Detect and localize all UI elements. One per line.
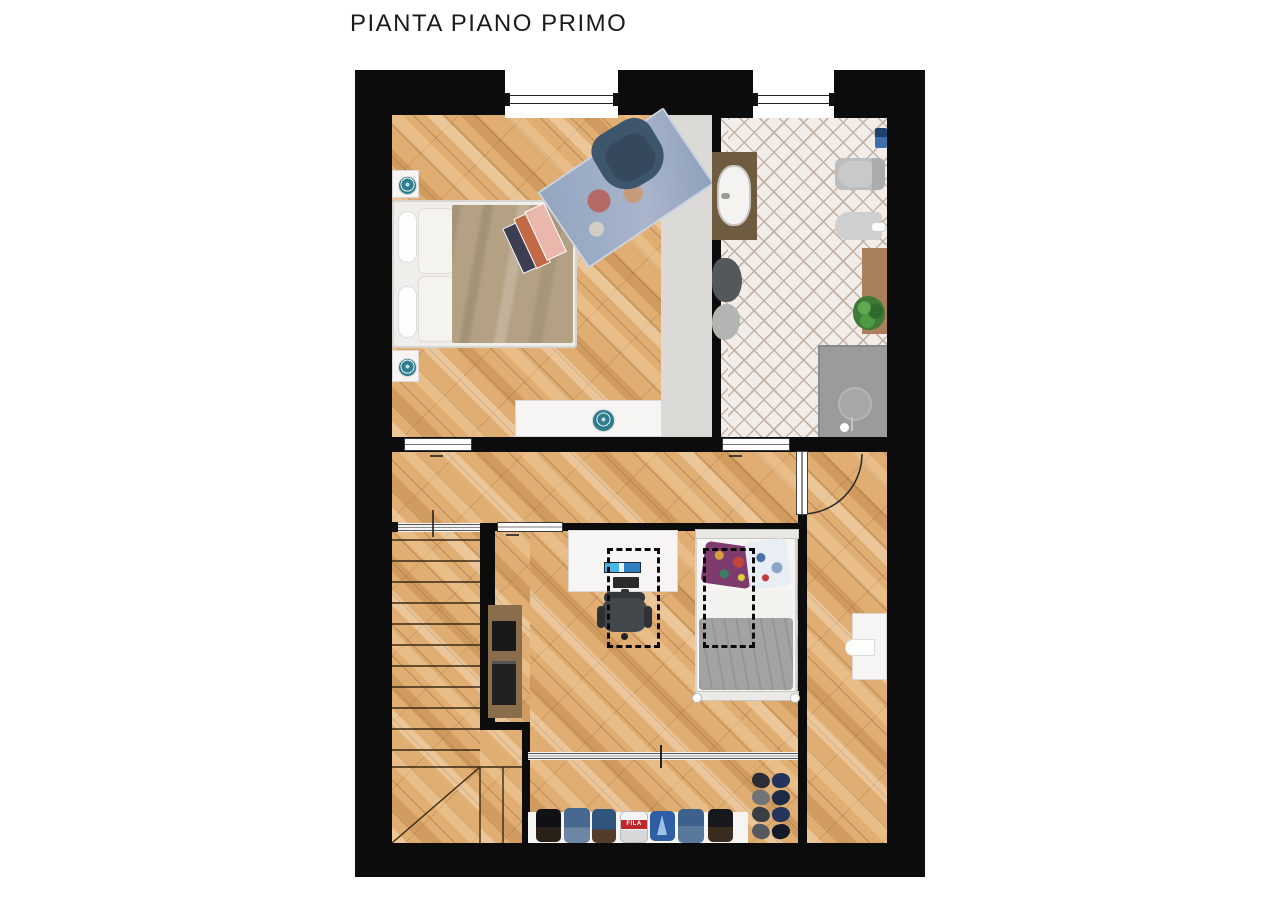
shower-drain-icon — [840, 423, 849, 432]
shoe-box: FILA — [620, 811, 648, 843]
folded-jacket-dark — [536, 809, 561, 842]
shoe-icon — [770, 788, 791, 807]
window-bedroom-1 — [505, 70, 618, 118]
folded-jeans-dark — [592, 809, 616, 843]
decor-plate-icon — [592, 409, 615, 432]
window-jamb-right — [613, 93, 618, 106]
bidet — [835, 212, 882, 240]
window-glazing — [755, 95, 832, 104]
double-bed — [392, 200, 577, 348]
bed-bolster-top — [398, 211, 417, 263]
shoe-icon — [751, 789, 771, 807]
understair-nook-floor — [480, 730, 522, 843]
shower-valve-icon — [851, 417, 853, 431]
toilet-tank — [872, 158, 885, 190]
towel-dark — [712, 258, 742, 302]
hallway-floor — [392, 452, 798, 523]
folded-jeans-light — [564, 808, 590, 843]
shoe-rack — [751, 772, 795, 843]
shoe-icon — [771, 806, 791, 824]
sliding-door-bedroom-1 — [404, 438, 472, 451]
decor-plate-icon — [398, 358, 417, 377]
armchair-cushion — [600, 128, 661, 188]
decor-plate-icon — [398, 176, 417, 195]
low-dresser — [515, 400, 662, 437]
bed-headboard — [695, 529, 799, 539]
floor-plan: FILA — [355, 70, 925, 877]
shower — [818, 345, 887, 437]
window-glazing — [507, 95, 616, 104]
nightstand-bottom — [392, 350, 419, 382]
faucet-icon — [721, 193, 730, 199]
radiator — [852, 613, 887, 680]
speaker-icon — [492, 661, 516, 705]
chair-armrest-left — [597, 606, 605, 628]
shoe-box-label: FILA — [621, 820, 647, 829]
bed-pillow-top — [418, 208, 454, 274]
window-bathroom — [753, 70, 834, 118]
clothes-shelf: FILA — [528, 812, 748, 843]
window-jamb-left — [753, 93, 758, 106]
sliding-door-bathroom — [722, 438, 790, 451]
toilet-bowl — [838, 161, 872, 187]
hinged-door-side-room — [796, 451, 808, 515]
toilet — [835, 158, 885, 190]
floor-plan-page: PIANTA PIANO PRIMO — [0, 0, 1280, 905]
media-cabinet — [488, 605, 522, 718]
bed-pillow-bottom — [418, 276, 454, 342]
eiffel-graphic-icon — [657, 815, 667, 835]
folded-shirt-eiffel — [650, 811, 675, 841]
shoe-icon — [751, 805, 772, 823]
staircase-floor — [392, 523, 480, 843]
bed-post — [790, 693, 800, 703]
skylight-marking-1 — [607, 548, 660, 648]
nightstand-top — [392, 170, 419, 198]
folded-jeans-blue — [678, 809, 704, 843]
bed-bolster-bottom — [398, 286, 417, 338]
page-title: PIANTA PIANO PRIMO — [350, 10, 627, 38]
bed-post — [692, 693, 702, 703]
tv-icon — [492, 621, 516, 651]
shoe-icon — [750, 822, 771, 841]
folded-jacket-black — [708, 809, 733, 842]
sink — [717, 165, 751, 226]
shower-head-icon — [838, 387, 872, 421]
shoe-icon — [770, 822, 791, 841]
window-jamb-left — [505, 93, 510, 106]
shoe-icon — [771, 771, 792, 789]
skylight-marking-2 — [703, 548, 755, 648]
shoe-icon — [750, 771, 771, 790]
bed-footboard — [695, 691, 799, 701]
sliding-door-bedroom-2 — [497, 522, 563, 532]
cosmetics — [875, 128, 887, 148]
bidet-tap-icon — [871, 222, 886, 232]
radiator-valve-icon — [845, 639, 875, 656]
window-jamb-right — [829, 93, 834, 106]
vanity — [712, 152, 757, 240]
plant — [853, 296, 885, 330]
